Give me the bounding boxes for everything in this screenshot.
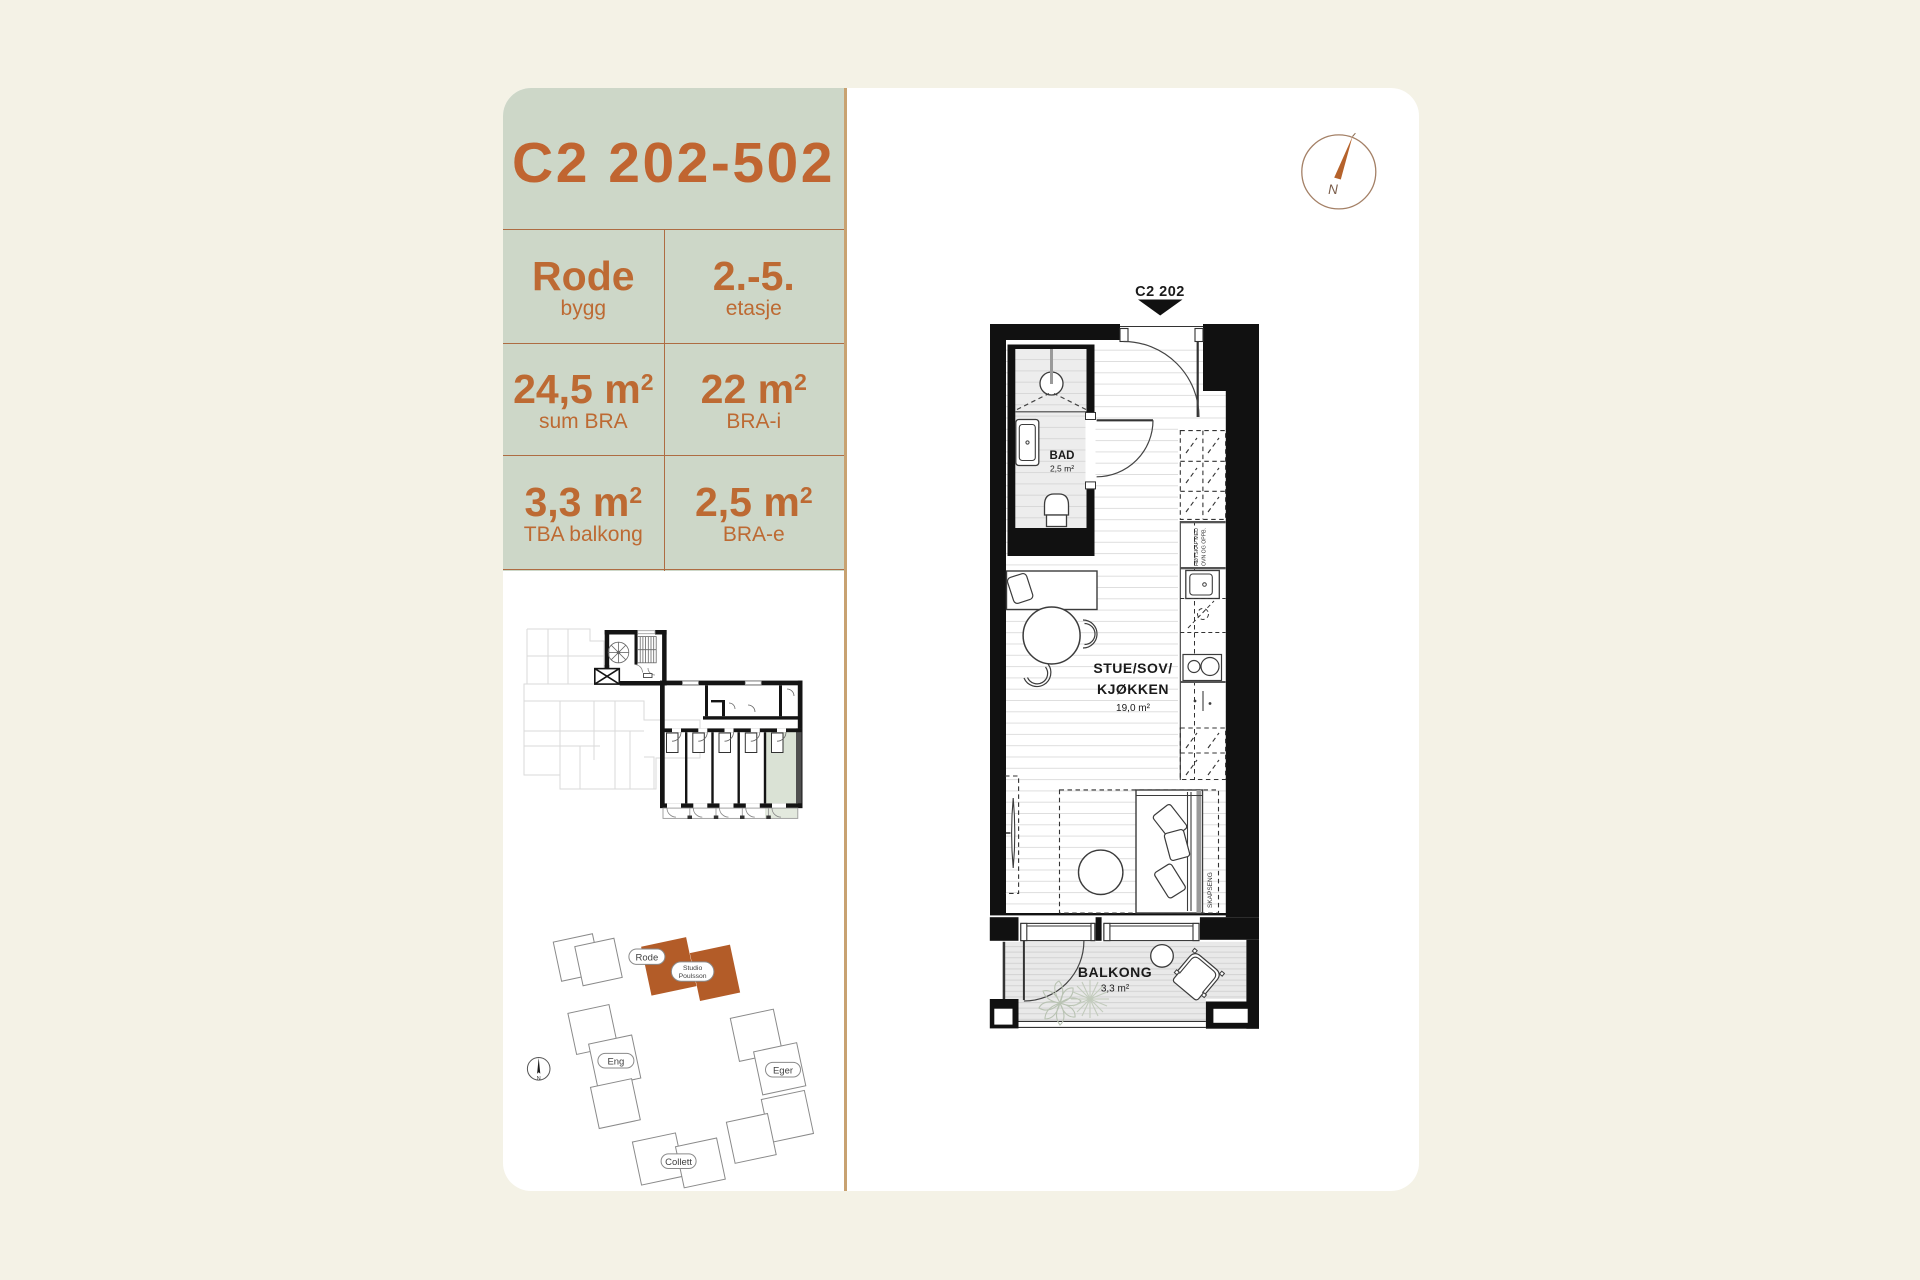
svg-text:KJØKKEN: KJØKKEN [1097,681,1169,697]
svg-text:Collett: Collett [665,1157,692,1168]
svg-text:N: N [1328,182,1338,197]
svg-text:BAD: BAD [1050,450,1075,462]
svg-text:Studio: Studio [683,965,702,972]
svg-text:Poulsson: Poulsson [679,973,707,980]
svg-text:HØYSKAP MED: HØYSKAP MED [1194,528,1200,566]
svg-text:19,0 m²: 19,0 m² [1116,703,1151,714]
svg-text:STUE/SOV/: STUE/SOV/ [1093,660,1172,676]
svg-text:Rode: Rode [636,953,659,964]
svg-text:2,5 m²: 2,5 m² [1050,464,1074,474]
svg-text:OVN OG OPPB.: OVN OG OPPB. [1202,528,1208,566]
svg-text:3,3 m²: 3,3 m² [1101,984,1130,995]
svg-text:C2 202: C2 202 [1135,284,1185,300]
svg-text:Eng: Eng [607,1056,624,1067]
svg-text:N: N [537,1076,541,1082]
svg-text:Eger: Eger [773,1065,793,1076]
svg-text:BALKONG: BALKONG [1078,964,1152,980]
svg-text:SKAPSENG: SKAPSENG [1207,872,1214,908]
